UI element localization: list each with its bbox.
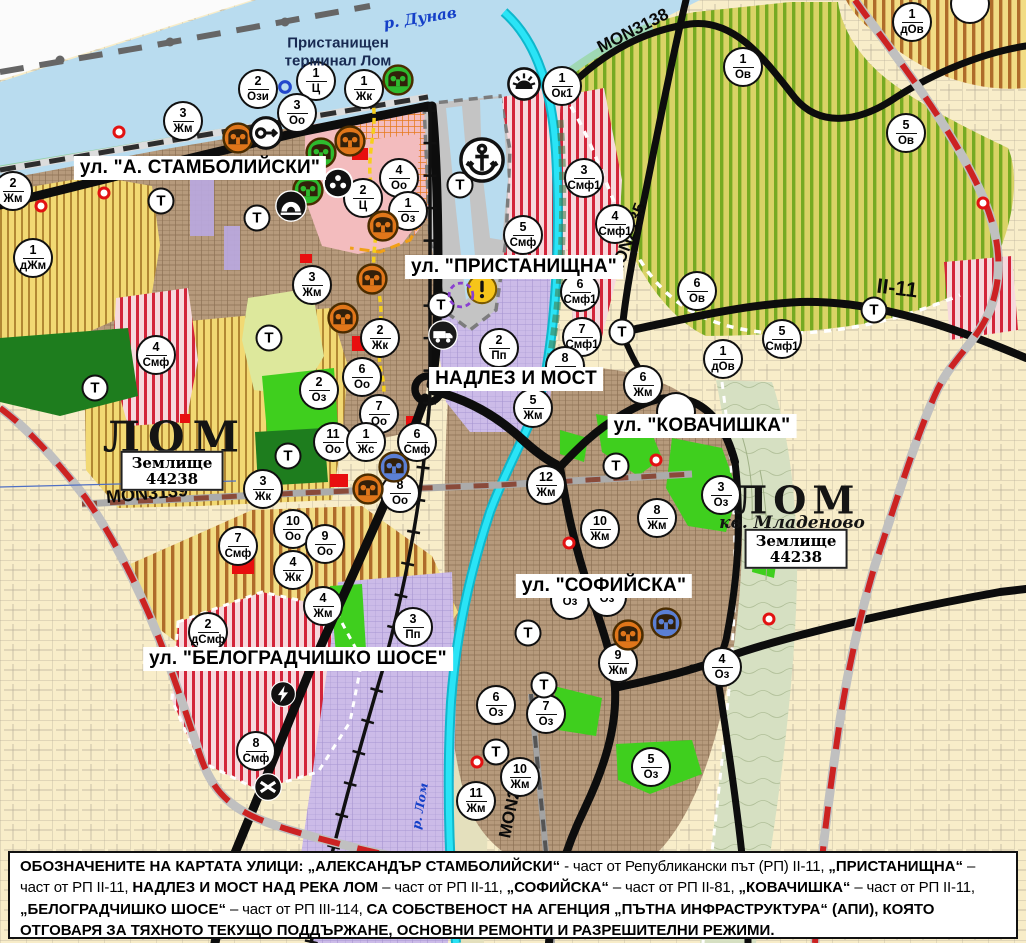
zone-marker-number: 6 — [640, 371, 647, 384]
zone-marker-code: Ов — [735, 70, 751, 82]
city-plan-map: 2Ози1Ц1Жк3Оо3Жм2Жм1дЖм4Оо2Ц1Оз1Ок13Смф14… — [0, 0, 1026, 943]
zone-marker-code: дОв — [711, 362, 734, 374]
land-unit-line2: 44238 — [756, 549, 837, 565]
zone-marker: 1Ок1 — [542, 66, 582, 106]
zone-marker-code: Жм — [648, 521, 667, 533]
zone-marker: 4Оз — [702, 647, 742, 687]
zone-marker: 1дОв — [703, 339, 743, 379]
zone-marker-code: Жм — [511, 780, 530, 792]
zone-marker: 3Оо — [277, 93, 317, 133]
red-point-marker — [113, 126, 126, 139]
zone-marker: 4Жк — [273, 550, 313, 590]
terrain-marker: Т — [275, 443, 302, 470]
zone-marker-number: 1 — [363, 428, 370, 441]
zone-marker: 10Жм — [580, 509, 620, 549]
zone-marker-number: 5 — [779, 325, 786, 338]
zone-marker: 5Ов — [886, 113, 926, 153]
cultural-monument-icon — [334, 125, 367, 158]
zone-marker-number: 6 — [493, 691, 500, 704]
land-unit-box: Землище44238 — [745, 529, 848, 569]
zone-marker-code: дСмф — [191, 635, 225, 647]
zone-marker: 8Жм — [637, 498, 677, 538]
terrain-marker: Т — [244, 205, 271, 232]
zone-marker-code: Оз — [714, 498, 729, 510]
dashed-ring-marker — [446, 280, 476, 310]
zone-marker: 11Жм — [456, 781, 496, 821]
zone-marker-number: 4 — [719, 653, 726, 666]
zone-marker-number: 3 — [180, 107, 187, 120]
sun-icon — [507, 67, 541, 101]
zone-marker-code: Жм — [314, 609, 333, 621]
zone-marker-code: Оз — [489, 708, 504, 720]
zone-marker-number: 1 — [361, 75, 368, 88]
zone-marker: 3Жм — [163, 101, 203, 141]
zone-marker-code: Смф — [225, 549, 252, 561]
zone-marker-code: Жм — [537, 488, 556, 500]
zone-marker-code: Жк — [356, 92, 372, 104]
terrain-marker: Т — [256, 325, 283, 352]
zone-marker-number: 9 — [322, 530, 329, 543]
zone-marker-number: 6 — [414, 428, 421, 441]
zone-marker-code: Жм — [4, 194, 23, 206]
cultural-monument-icon — [327, 302, 360, 335]
zone-marker-code: Оз — [401, 214, 416, 226]
zone-marker-code: Смф1 — [563, 295, 596, 307]
zone-marker-code: Смф1 — [598, 227, 631, 239]
cultural-monument-icon — [356, 263, 389, 296]
zone-marker-number: 5 — [520, 221, 527, 234]
zone-marker-code: Ози — [247, 92, 269, 104]
cultural-monument-icon — [367, 210, 400, 243]
port-terminal-label: Пристанищентерминал Лом — [285, 34, 392, 69]
terrain-marker: Т — [609, 319, 636, 346]
zone-marker-code: Жм — [591, 532, 610, 544]
legend-note-segment: – част от РП II-11, — [850, 879, 974, 896]
street-label: НАДЛЕЗ И МОСТ — [429, 367, 603, 391]
zone-marker-code: Жм — [524, 411, 543, 423]
zone-marker: 5Смф1 — [762, 319, 802, 359]
red-point-marker — [650, 454, 663, 467]
land-unit-line2: 44238 — [132, 471, 213, 487]
zone-marker-code: Жк — [285, 573, 301, 585]
zone-marker-code: Жм — [174, 124, 193, 136]
zone-marker-number: 1 — [405, 197, 412, 210]
zone-marker-code: Смф — [143, 358, 170, 370]
zone-marker-number: 3 — [581, 164, 588, 177]
zone-marker-code: Ов — [689, 294, 705, 306]
legend-note-segment: „КОВАЧИШКА“ — [738, 879, 850, 896]
legend-note-segment: „СОФИЙСКА“ — [507, 879, 609, 896]
zone-marker-code: Оо — [285, 532, 301, 544]
street-label: ул. "А. СТАМБОЛИЙСКИ" — [74, 156, 326, 180]
zone-marker-number: 2 — [316, 376, 323, 389]
zone-marker-number: 4 — [290, 556, 297, 569]
zone-marker-number: 2 — [377, 324, 384, 337]
zone-marker-code: Пп — [405, 630, 420, 642]
zone-marker: 6Жм — [623, 365, 663, 405]
zone-marker: 3Жк — [243, 469, 283, 509]
legend-note-segment: - част от Републикански път (РП) II-11, — [560, 858, 828, 875]
zone-marker: 1дЖм — [13, 238, 53, 278]
zone-marker: 7Смф — [218, 526, 258, 566]
zone-marker-code: Жк — [255, 492, 271, 504]
zone-marker-number: 10 — [286, 515, 300, 528]
zone-marker-number: 5 — [648, 753, 655, 766]
zone-marker-number: 3 — [260, 475, 267, 488]
zone-marker: 3Оз — [701, 475, 741, 515]
street-label: ул. "СОФИЙСКА" — [516, 574, 692, 598]
zone-marker-number: 12 — [539, 471, 553, 484]
terrain-marker: Т — [603, 453, 630, 480]
zone-marker-number: 2 — [360, 184, 367, 197]
zone-marker-number: 1 — [30, 244, 37, 257]
zone-marker-number: 11 — [326, 428, 339, 441]
label-layer: ул. "А. СТАМБОЛИЙСКИ"ул. "ПРИСТАНИЩНА"НА… — [0, 0, 1026, 943]
blue-ring-marker — [278, 80, 293, 95]
river-label: р. Лом — [409, 782, 431, 831]
zone-marker-code: Жм — [634, 388, 653, 400]
legend-note-segment: ОБОЗНАЧЕНИТЕ НА КАРТАТА УЛИЦИ: „АЛЕКСАНД… — [20, 858, 560, 875]
zone-marker-number: 3 — [410, 613, 417, 626]
zone-marker: 2дСмф — [188, 612, 228, 652]
zone-marker-code: Ок1 — [551, 89, 572, 101]
railway-crossing-icon — [254, 773, 283, 802]
legend-note-segment: – част от РП II-81, — [609, 879, 739, 896]
zone-marker-number: 2 — [255, 75, 262, 88]
zone-marker-number: 10 — [593, 515, 607, 528]
zone-marker-code: Жк — [372, 341, 388, 353]
legend-note-segment: НАДЛЕЗ И МОСТ НАД РЕКА ЛОМ — [132, 879, 378, 896]
zone-marker: 2Ози — [238, 69, 278, 109]
zone-marker-number: 7 — [376, 400, 383, 413]
legend-note-segment: „ПРИСТАНИЩНА“ — [828, 858, 963, 875]
land-unit-line1: Землище — [132, 455, 213, 471]
zone-marker-code: Жм — [609, 666, 628, 678]
port-terminal-label-line2: терминал Лом — [285, 52, 392, 70]
legend-note-segment: „БЕЛОГРАДЧИШКО ШОСЕ“ — [20, 901, 226, 918]
zone-marker-code: Оз — [539, 717, 554, 729]
zone-marker-code: дЖм — [20, 261, 46, 273]
legend-note-segment: – част от РП III-114, — [226, 901, 367, 918]
terrain-marker: Т — [82, 375, 109, 402]
zone-marker: 6Ов — [677, 271, 717, 311]
zone-marker-number: 7 — [579, 323, 586, 336]
lightning-icon — [270, 681, 297, 708]
zone-marker-code: Пп — [491, 351, 506, 363]
zone-marker-number: 3 — [294, 99, 301, 112]
legend-note-segment: – част от РП II-11, — [378, 879, 506, 896]
cultural-monument-icon — [650, 607, 683, 640]
street-label: ул. "ПРИСТАНИЩНА" — [405, 255, 623, 279]
zone-marker-number: 2 — [205, 618, 212, 631]
zone-marker-code: Оо — [317, 547, 333, 559]
zone-marker-number: 10 — [513, 763, 527, 776]
red-point-marker — [471, 756, 484, 769]
cave-icon — [275, 190, 308, 223]
street-label: ул. "КОВАЧИШКА" — [608, 414, 797, 438]
zone-marker: 3Смф1 — [564, 158, 604, 198]
river-label: р. Дунав — [382, 3, 458, 32]
truck-icon — [428, 320, 459, 351]
zone-marker-number: 6 — [577, 278, 584, 291]
zone-marker-number: 4 — [320, 592, 327, 605]
zone-marker-code: Оо — [289, 116, 305, 128]
zone-marker-number: 7 — [235, 532, 242, 545]
zone-marker-code: Оо — [392, 496, 408, 508]
zone-marker-code: дОв — [900, 25, 923, 37]
zone-marker-number: 11 — [469, 787, 482, 800]
zone-marker-number: 8 — [253, 737, 260, 750]
zone-marker: 6Оо — [342, 357, 382, 397]
cultural-monument-icon — [612, 619, 645, 652]
red-point-marker — [98, 187, 111, 200]
zone-marker: 2Пп — [479, 328, 519, 368]
zone-marker-code: Оо — [325, 445, 341, 457]
zone-marker-number: 6 — [694, 277, 701, 290]
terrain-marker: Т — [148, 188, 175, 215]
zone-marker: 10Жм — [500, 757, 540, 797]
land-unit-line1: Землище — [756, 533, 837, 549]
zone-marker-number: 1 — [740, 53, 747, 66]
zone-marker-number: 7 — [543, 700, 550, 713]
cultural-monument-icon — [378, 451, 411, 484]
zone-marker-code: Оо — [354, 380, 370, 392]
zone-marker: 9Оо — [305, 524, 345, 564]
zone-marker-number: 2 — [496, 334, 503, 347]
zone-marker-number: 8 — [562, 352, 569, 365]
terrain-marker: Т — [861, 297, 888, 324]
zone-marker: 1дОв — [892, 2, 932, 42]
zone-marker: 5Оз — [631, 747, 671, 787]
red-point-marker — [977, 197, 990, 210]
zone-marker: 1Жк — [344, 69, 384, 109]
zone-marker-number: 4 — [153, 341, 160, 354]
terrain-marker: Т — [515, 620, 542, 647]
land-unit-box: Землище44238 — [121, 451, 224, 491]
red-point-marker — [763, 613, 776, 626]
zone-marker: 8Смф — [236, 731, 276, 771]
zone-marker-code: Ц — [312, 84, 320, 96]
terrain-marker: Т — [483, 739, 510, 766]
anchor-icon — [459, 137, 505, 183]
zone-marker: 5Жм — [513, 388, 553, 428]
terrain-marker: Т — [531, 672, 558, 699]
port-terminal-label-line1: Пристанищен — [285, 34, 392, 52]
zone-marker-code: Оз — [563, 597, 578, 609]
zone-marker-number: 1 — [720, 345, 727, 358]
zone-marker: 7Оз — [526, 694, 566, 734]
key-icon — [249, 116, 283, 150]
zone-marker-code: Ов — [898, 136, 914, 148]
zone-marker-number: 3 — [718, 481, 725, 494]
zone-marker-number: 6 — [359, 363, 366, 376]
road-number-label: MON3138 — [594, 5, 672, 58]
people-icon — [322, 167, 355, 200]
zone-marker-code: Смф — [243, 754, 270, 766]
zone-marker-code: Жс — [358, 445, 375, 457]
zone-marker: 12Жм — [526, 465, 566, 505]
zone-marker-number: 5 — [903, 119, 910, 132]
red-point-marker — [563, 537, 576, 550]
zone-marker: 6Оз — [476, 685, 516, 725]
zone-marker-number: 4 — [612, 210, 619, 223]
zone-marker-code: Смф1 — [765, 342, 798, 354]
street-label: ул. "БЕЛОГРАДЧИШКО ШОСЕ" — [143, 647, 453, 671]
zone-marker: 4Смф1 — [595, 204, 635, 244]
zone-marker-number: 2 — [10, 177, 17, 190]
zone-marker: 3Пп — [393, 607, 433, 647]
zone-marker-code: Смф — [510, 238, 537, 250]
red-point-marker — [35, 200, 48, 213]
zone-marker-number: 3 — [309, 271, 316, 284]
legend-note: ОБОЗНАЧЕНИТЕ НА КАРТАТА УЛИЦИ: „АЛЕКСАНД… — [8, 851, 1018, 939]
zone-marker: 3Жм — [292, 265, 332, 305]
zone-marker: 2Оз — [299, 370, 339, 410]
zone-marker-code: Жм — [467, 804, 486, 816]
zone-marker: 5Смф — [503, 215, 543, 255]
zone-marker-code: Оз — [312, 393, 327, 405]
zone-marker: 4Жм — [303, 586, 343, 626]
zone-marker-number: 5 — [530, 394, 537, 407]
zone-marker-number: 4 — [396, 164, 403, 177]
zone-marker: 4Смф — [136, 335, 176, 375]
zone-marker-number: 1 — [559, 72, 566, 85]
zone-marker-code: Оз — [644, 770, 659, 782]
zone-marker-number: 8 — [654, 504, 661, 517]
zone-marker-number: 1 — [909, 8, 916, 21]
zone-marker-code: Смф1 — [567, 181, 600, 193]
zone-marker: 1Ов — [723, 47, 763, 87]
zone-marker-code: Жм — [303, 288, 322, 300]
zone-marker-code: Оз — [715, 670, 730, 682]
zone-marker: 2Жк — [360, 318, 400, 358]
